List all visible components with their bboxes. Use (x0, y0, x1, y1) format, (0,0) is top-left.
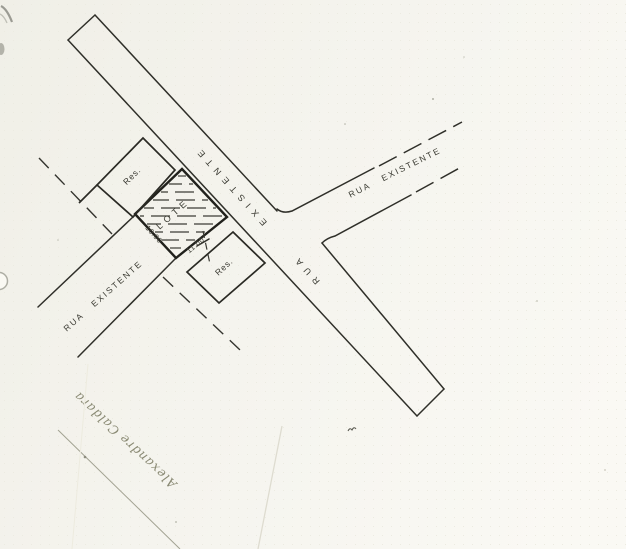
site-plan-drawing: RUA EXISTENTE RUA EXISTENTE RUA EXISTENT… (0, 0, 626, 549)
handwritten-annotation: Alexandre Caldara (58, 389, 180, 549)
paper-fold-line (258, 426, 282, 549)
alignment-dashed-upper (39, 158, 112, 234)
speck (344, 123, 346, 125)
main-road-label: RUA EXISTENTE (192, 144, 322, 287)
main-road-right-edge-lower (322, 243, 444, 389)
lote-parcel (135, 169, 227, 258)
handwritten-name: Alexandre Caldara (70, 389, 180, 493)
speck (175, 521, 177, 523)
dimension-extension-dashed (203, 231, 210, 264)
lot-dimension-right: 11.00 (185, 235, 207, 255)
pencil-fleck (84, 456, 87, 459)
left-street-upper-edge (38, 216, 134, 307)
residence-lower-label: Res. (213, 256, 235, 277)
alignment-dashed-lower (163, 277, 240, 350)
page-corner-curl-inner (0, 14, 7, 23)
left-street-label: RUA EXISTENTE (61, 258, 144, 333)
page-corner-curl (1, 6, 12, 22)
residence-upper-fence-line (79, 185, 97, 203)
speck (536, 300, 538, 302)
branch-street-lower-edge-solid (322, 195, 411, 243)
scanned-site-plan-page: RUA EXISTENTE RUA EXISTENTE RUA EXISTENT… (0, 0, 626, 549)
branch-street-label: RUA EXISTENTE (347, 145, 443, 199)
handwritten-stroke-line (58, 430, 180, 549)
lot-label: LOTE (154, 196, 192, 231)
punch-hole-notch (0, 273, 8, 290)
speck (463, 56, 465, 58)
lot-boundary (135, 169, 227, 258)
speck (57, 239, 59, 241)
residence-upper-label: Res. (121, 165, 143, 187)
speck (432, 98, 434, 100)
speck (604, 469, 606, 471)
main-road-bottom-cap (417, 389, 444, 416)
branch-street-lower-edge-dashed (416, 165, 465, 192)
stray-pen-mark (348, 428, 356, 431)
main-road-top-cap (68, 15, 95, 40)
scan-artifacts (0, 6, 606, 549)
edge-blob (0, 43, 5, 55)
